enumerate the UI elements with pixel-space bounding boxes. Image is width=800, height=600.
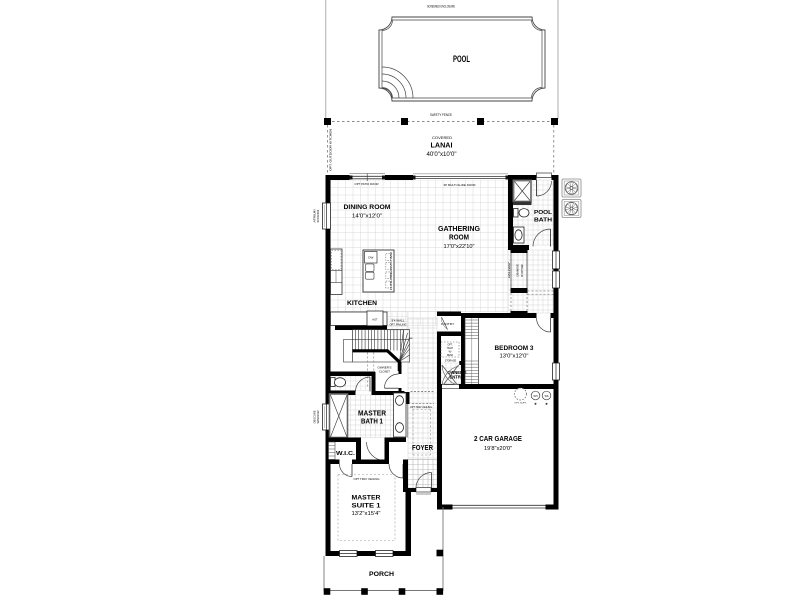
svg-text:OPT TRAY CEILING: OPT TRAY CEILING — [354, 478, 380, 481]
svg-text:16R: 16R — [408, 338, 412, 340]
svg-text:WS: WS — [545, 395, 549, 398]
svg-text:BEDROOM 3: BEDROOM 3 — [495, 345, 534, 352]
svg-text:KITCHEN: KITCHEN — [347, 300, 377, 307]
svg-text:DW: DW — [368, 256, 373, 260]
svg-text:13'0"x12'0": 13'0"x12'0" — [500, 354, 529, 360]
svg-text:SUITE 1: SUITE 1 — [352, 503, 381, 510]
svg-text:SAFETY FENCE: SAFETY FENCE — [430, 113, 452, 117]
svg-text:SCREENED ENCLOSURE: SCREENED ENCLOSURE — [427, 5, 455, 9]
svg-text:OPT. OUTDOOR KITCHEN: OPT. OUTDOOR KITCHEN — [330, 129, 333, 171]
svg-text:MASTER: MASTER — [358, 411, 386, 418]
svg-text:DOOR: DOOR — [317, 209, 320, 222]
svg-text:OPT.: OPT. — [447, 345, 452, 347]
svg-text:OPT TRAY CEILING: OPT TRAY CEILING — [410, 406, 432, 409]
svg-text:WINDOW: WINDOW — [317, 410, 320, 424]
svg-text:3P MULTI-SLIDE DOOR: 3P MULTI-SLIDE DOOR — [444, 183, 477, 187]
svg-text:STORAGE: STORAGE — [445, 359, 457, 362]
svg-text:POOL: POOL — [453, 54, 470, 64]
svg-text:ROOM: ROOM — [449, 235, 469, 242]
svg-text:HOT: HOT — [372, 319, 378, 322]
svg-text:CAB ABOVE: CAB ABOVE — [517, 264, 520, 277]
svg-text:POOL: POOL — [534, 210, 552, 216]
svg-text:TECH: TECH — [447, 348, 454, 350]
svg-text:CLOSET: CLOSET — [379, 370, 390, 374]
svg-text:13'2"x15'4": 13'2"x15'4" — [352, 511, 381, 517]
svg-text:WH: WH — [534, 395, 538, 398]
svg-text:2 CAR GARAGE: 2 CAR GARAGE — [474, 436, 522, 443]
svg-text:W.I.C.: W.I.C. — [336, 451, 356, 457]
svg-text:W/: W/ — [449, 352, 452, 354]
svg-text:19'8"x20'0": 19'8"x20'0" — [484, 446, 512, 452]
svg-text:DESK: DESK — [447, 355, 454, 357]
svg-text:OPT PATIO DOOR: OPT PATIO DOOR — [355, 182, 380, 186]
svg-text:OPT. SOFT.: OPT. SOFT. — [515, 403, 527, 405]
svg-text:DINING ROOM: DINING ROOM — [344, 204, 391, 211]
svg-text:PORCH: PORCH — [369, 571, 394, 578]
svg-text:9'4 WALL: 9'4 WALL — [392, 319, 406, 323]
svg-text:BATH 1: BATH 1 — [361, 419, 383, 426]
svg-text:17'0"x22'10": 17'0"x22'10" — [444, 244, 475, 250]
svg-text:FLUSH BREAKFAST BAR: FLUSH BREAKFAST BAR — [389, 252, 393, 290]
svg-text:GATHERING: GATHERING — [438, 226, 481, 233]
svg-text:COVERED: COVERED — [432, 136, 452, 140]
svg-text:40'0"x10'0": 40'0"x10'0" — [427, 152, 457, 158]
svg-text:FOYER: FOYER — [412, 445, 433, 452]
svg-text:LANAI: LANAI — [431, 143, 453, 150]
svg-text:BATH: BATH — [534, 218, 552, 224]
svg-text:OPT. RAILING: OPT. RAILING — [390, 322, 407, 326]
svg-text:14'0"x12'0": 14'0"x12'0" — [352, 214, 382, 220]
svg-text:MASTER: MASTER — [352, 495, 381, 502]
svg-text:W/ OPT REF: W/ OPT REF — [522, 263, 524, 277]
svg-text:HALLWAY: HALLWAY — [507, 262, 511, 278]
